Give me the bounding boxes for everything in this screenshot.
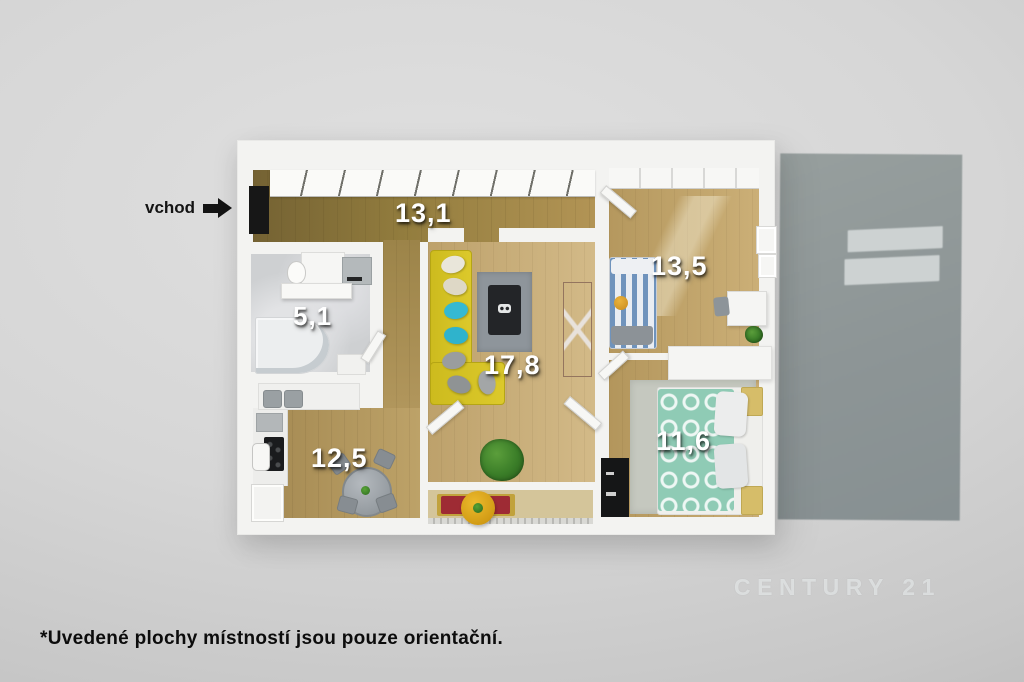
table-plant [473, 503, 483, 513]
game-controller [498, 304, 511, 313]
bathroom-accessory [347, 277, 362, 281]
room-area-label-hallway: 13,1 [395, 198, 452, 229]
bathroom-vanity [281, 283, 352, 299]
wall-segment [499, 228, 595, 242]
disclaimer-text: *Uvedené plochy místností jsou pouze ori… [40, 628, 503, 650]
toilet [287, 261, 306, 284]
desk [727, 291, 767, 326]
hallway-wardrobe [270, 170, 595, 197]
bedroom-upper-wardrobe-front [609, 168, 759, 189]
cutting-board [256, 413, 283, 432]
headboard-post [741, 486, 763, 515]
bathroom-counter [301, 252, 345, 285]
fridge [251, 484, 284, 522]
wall-segment [428, 228, 464, 242]
teddy-bear [614, 296, 628, 310]
table-plant [361, 486, 370, 495]
room-area-label-kitchen: 12,5 [311, 443, 368, 474]
tv-dresser [601, 458, 629, 517]
kitchen-sink [252, 443, 270, 471]
entrance-arrow-icon [203, 198, 232, 218]
small-plant [745, 326, 763, 343]
potted-plant [480, 439, 524, 481]
room-area-label-bathroom: 5,1 [293, 301, 332, 332]
entrance-door [249, 186, 269, 234]
bed-pillow [611, 259, 653, 274]
wall-shelf [756, 226, 777, 254]
wall-shelf [758, 254, 777, 278]
floorplan: 13,1 5,1 12,5 17,8 13,5 11,6 [237, 140, 775, 535]
brand-watermark: CENTURY 21 [734, 574, 941, 601]
entrance-label: vchod [145, 198, 195, 218]
desk-chair [713, 296, 730, 316]
room-area-label-bedroom-lower: 11,6 [656, 426, 711, 457]
entrance-callout: vchod [145, 198, 232, 218]
wall-shadow [778, 153, 963, 520]
light-reflection-bar [844, 255, 939, 285]
bed-blanket [611, 326, 653, 345]
bedroom-wardrobe [668, 346, 772, 380]
bed-pillow [714, 443, 749, 489]
room-area-label-living-room: 17,8 [484, 350, 541, 381]
sideboard [563, 282, 592, 377]
bar-stool [284, 390, 303, 408]
balcony-railing [428, 518, 593, 524]
corridor-floor [383, 240, 420, 408]
light-reflection-bar [848, 226, 943, 252]
bar-stool [263, 390, 282, 408]
room-area-label-bedroom-upper: 13,5 [651, 251, 708, 282]
bed-pillow [714, 391, 749, 437]
floorplan-scene: vchod [0, 0, 1024, 682]
